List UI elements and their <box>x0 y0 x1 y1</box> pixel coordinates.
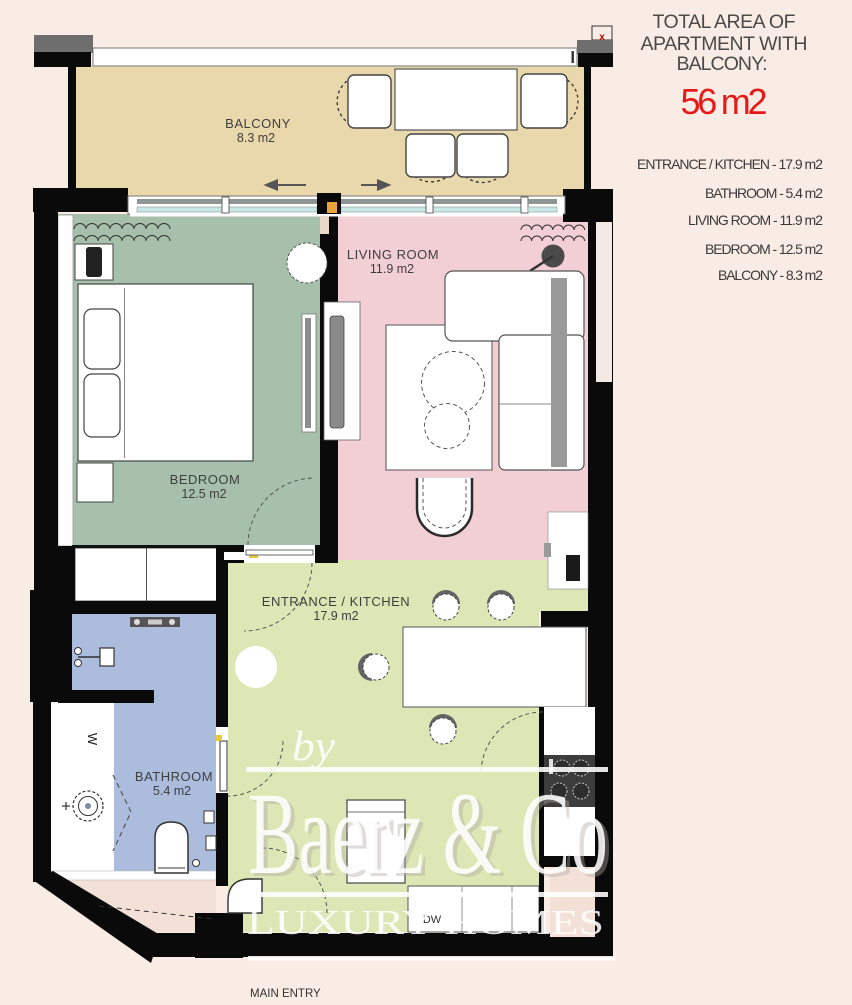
svg-text:5.4 m2: 5.4 m2 <box>153 784 191 798</box>
svg-text:BEDROOM - 12.5 m2: BEDROOM - 12.5 m2 <box>705 241 823 257</box>
svg-text:APARTMENT WITH: APARTMENT WITH <box>641 33 808 55</box>
svg-text:TOTAL AREA OF: TOTAL AREA OF <box>653 11 796 33</box>
svg-text:BEDROOM: BEDROOM <box>170 472 241 487</box>
svg-text:8.3 m2: 8.3 m2 <box>237 131 275 145</box>
svg-text:ENTRANCE / KITCHEN - 17.9 m2: ENTRANCE / KITCHEN - 17.9 m2 <box>637 156 823 172</box>
svg-text:56 m2: 56 m2 <box>681 81 768 122</box>
svg-text:BALCONY:: BALCONY: <box>677 53 768 75</box>
svg-text:BALCONY: BALCONY <box>225 116 291 131</box>
svg-text:LUXURY HOMES: LUXURY HOMES <box>247 903 604 942</box>
svg-text:11.9 m2: 11.9 m2 <box>370 262 414 276</box>
svg-text:17.9 m2: 17.9 m2 <box>313 609 358 623</box>
svg-text:BATHROOM - 5.4 m2: BATHROOM - 5.4 m2 <box>705 185 823 201</box>
svg-text:BATHROOM: BATHROOM <box>135 769 213 784</box>
svg-text:by: by <box>292 724 335 770</box>
svg-text:LIVING ROOM: LIVING ROOM <box>347 247 439 262</box>
svg-text:12.5 m2: 12.5 m2 <box>181 487 226 501</box>
svg-text:Baerz & Co: Baerz & Co <box>248 768 608 899</box>
svg-text:LIVING ROOM - 11.9 m2: LIVING ROOM - 11.9 m2 <box>688 212 823 228</box>
svg-text:W: W <box>85 733 100 746</box>
svg-text:ENTRANCE / KITCHEN: ENTRANCE / KITCHEN <box>262 594 410 609</box>
svg-text:BALCONY - 8.3 m2: BALCONY - 8.3 m2 <box>718 267 823 283</box>
svg-text:MAIN ENTRY: MAIN ENTRY <box>250 988 321 1000</box>
